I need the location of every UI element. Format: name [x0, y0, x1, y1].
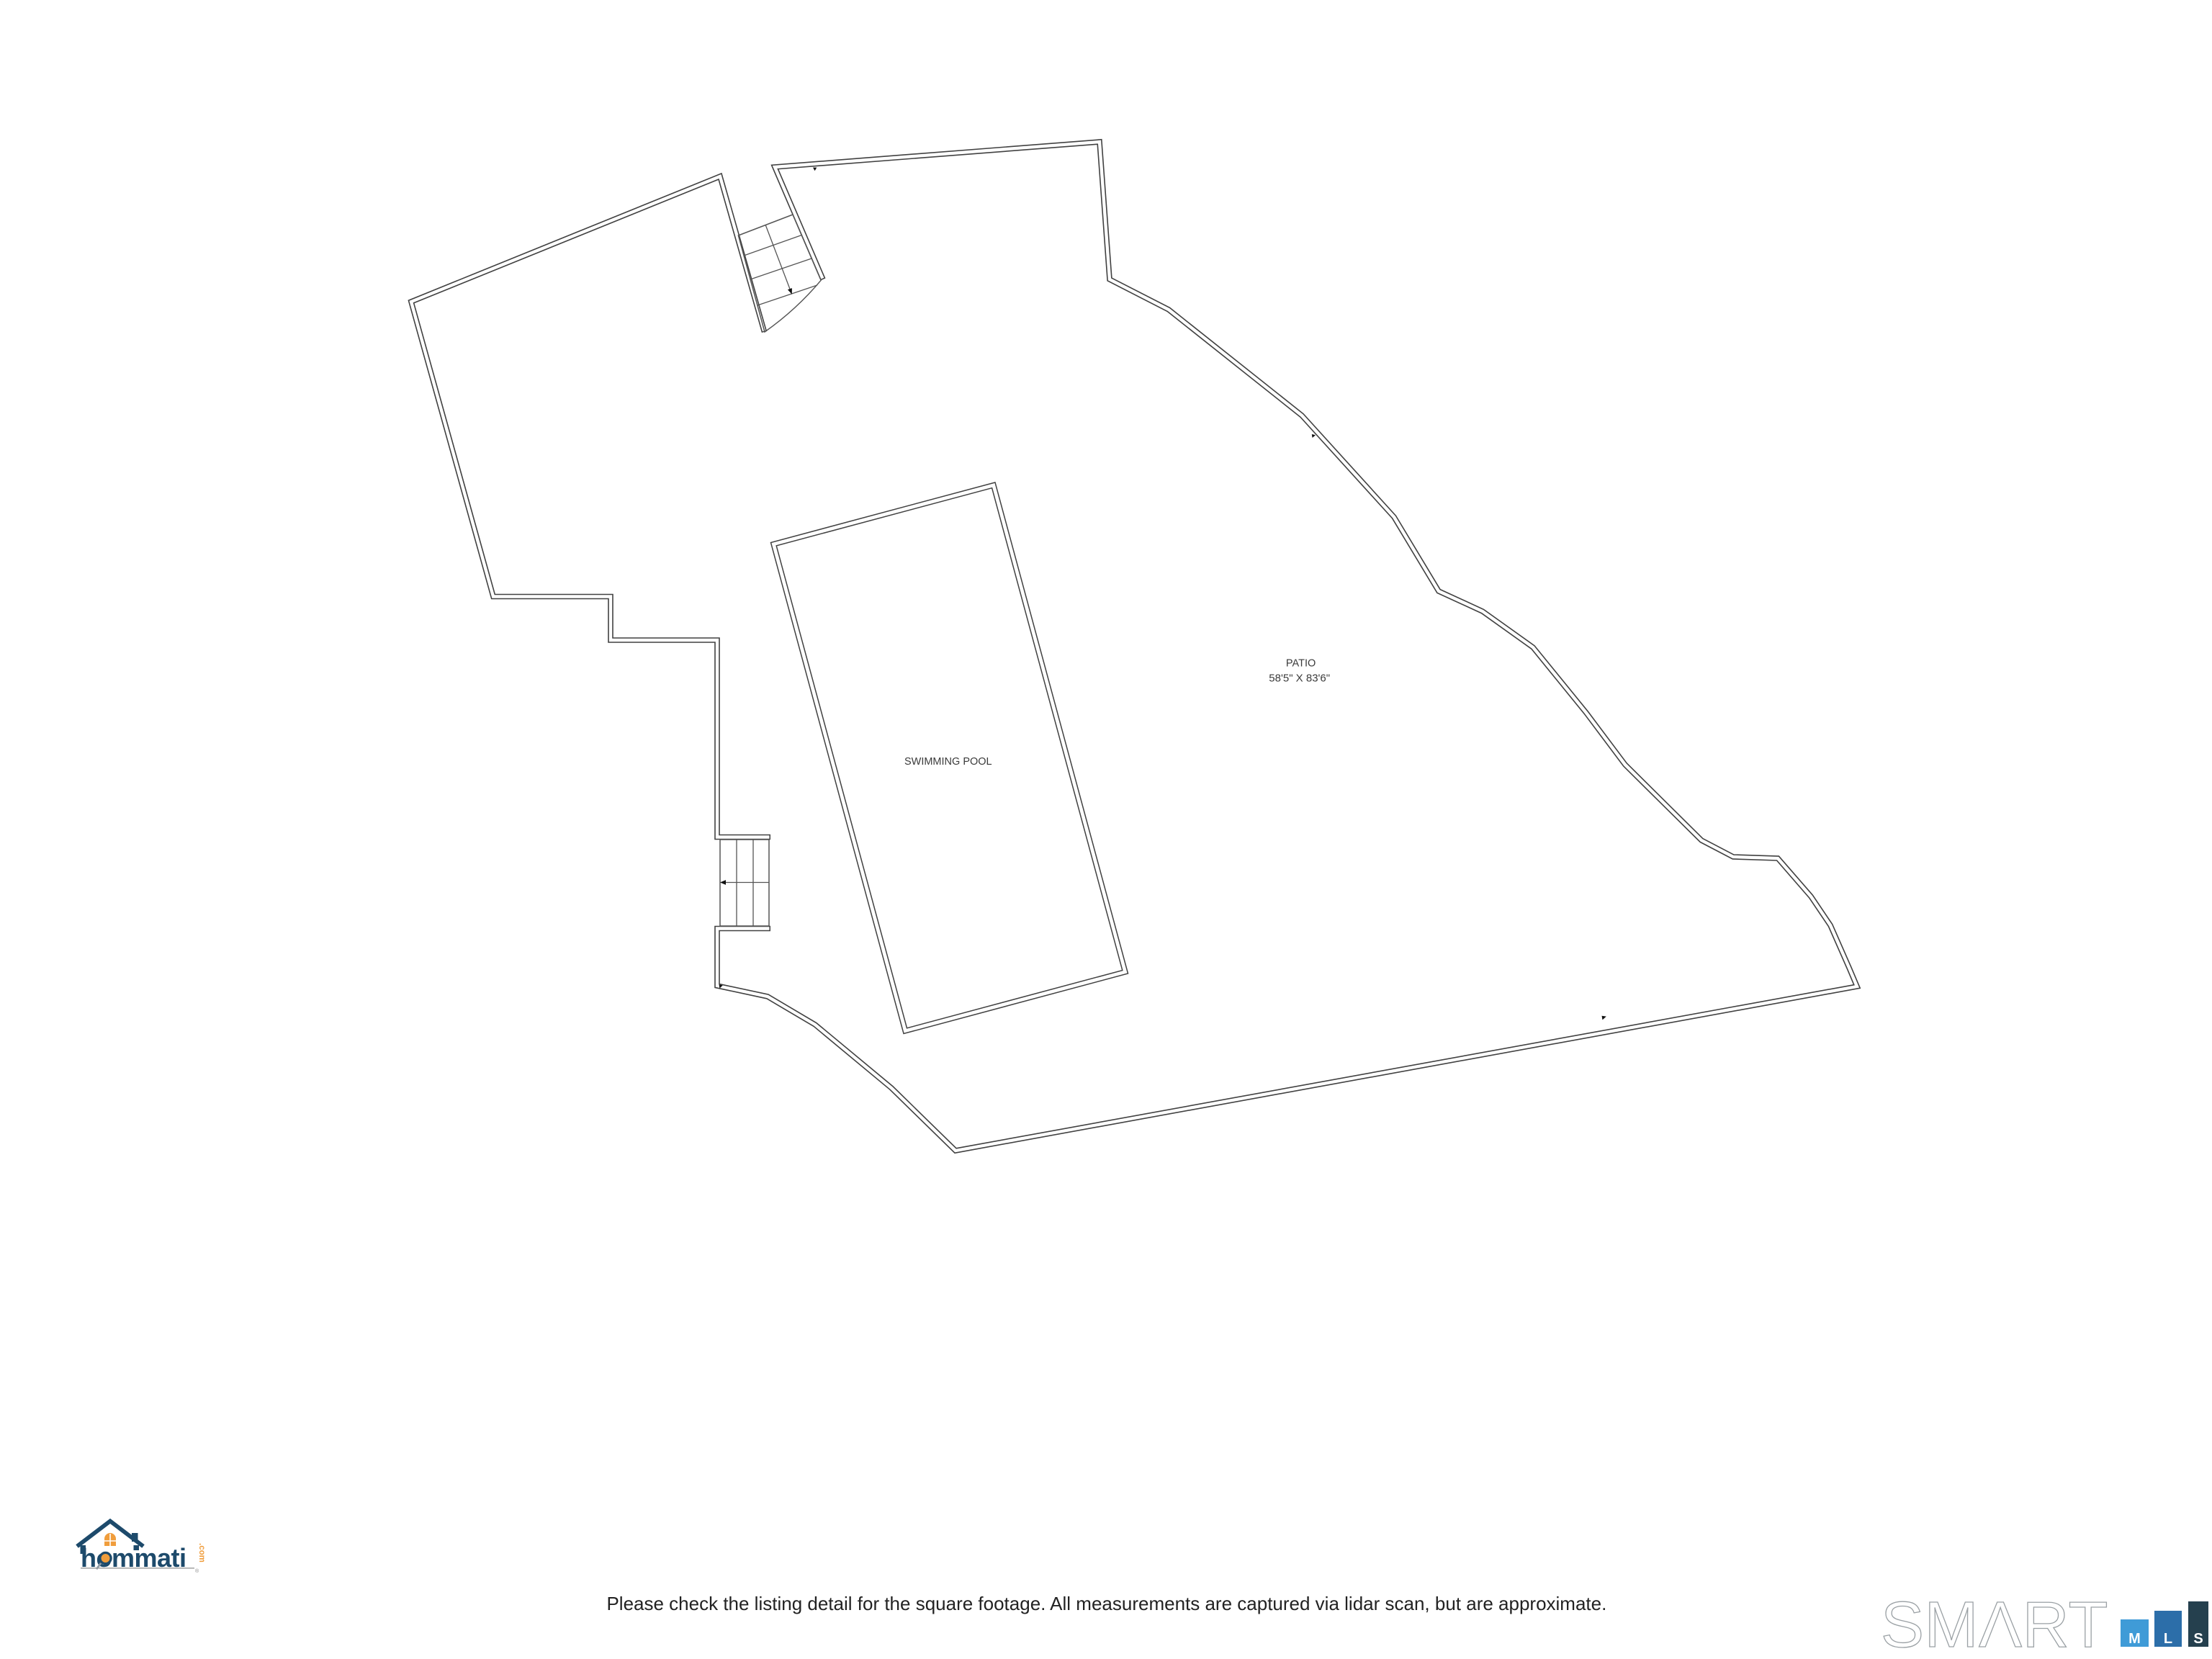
svg-text:®: ®: [195, 1568, 199, 1574]
svg-text:SMΛRT: SMΛRT: [1881, 1589, 2108, 1659]
svg-text:M: M: [2128, 1631, 2141, 1647]
svg-text:SWIMMING POOL: SWIMMING POOL: [904, 756, 992, 768]
svg-text:.com: .com: [197, 1543, 206, 1563]
svg-text:58'5" X 83'6": 58'5" X 83'6": [1269, 673, 1330, 685]
svg-text:PATIO: PATIO: [1286, 657, 1316, 669]
svg-text:L: L: [2164, 1631, 2172, 1647]
svg-text:S: S: [2193, 1631, 2203, 1647]
svg-text:Please check the listing detai: Please check the listing detail for the …: [606, 1593, 1606, 1614]
